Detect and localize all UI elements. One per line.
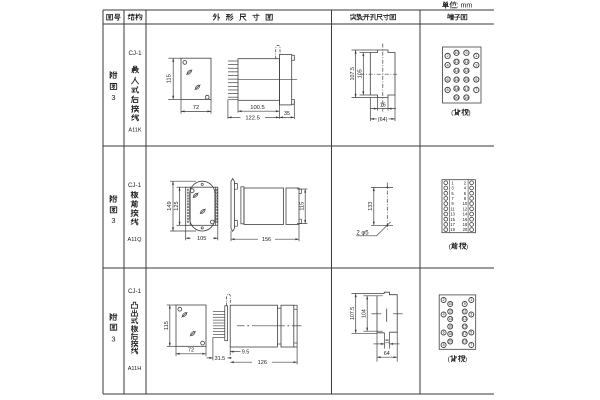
svg-text:6: 6 [447,77,449,82]
svg-text:16: 16 [384,338,389,344]
svg-text:9: 9 [464,302,466,306]
svg-text:35: 35 [284,111,290,117]
svg-text:15: 15 [463,325,467,329]
svg-text:105: 105 [197,236,206,242]
svg-text:5: 5 [470,331,472,335]
svg-text:156: 156 [262,237,271,243]
svg-text:1: 1 [475,53,477,58]
svg-text:(64): (64) [378,117,388,123]
svg-text:(: ( [451,110,454,117]
svg-text:2: 2 [443,298,445,302]
svg-text:122.5: 122.5 [245,116,260,122]
svg-text:105: 105 [358,69,364,78]
svg-text:16: 16 [448,325,452,329]
svg-text:mm: mm [461,3,473,10]
svg-text:): ) [465,356,467,363]
svg-text:100.5: 100.5 [250,105,265,111]
svg-text:14: 14 [448,317,452,321]
svg-text:107.5: 107.5 [350,67,356,81]
svg-text:17: 17 [464,86,468,91]
svg-text:3: 3 [111,335,115,344]
svg-text:20: 20 [448,340,452,344]
svg-text:2: 2 [447,53,449,58]
svg-text:11: 11 [464,59,468,64]
svg-text:72: 72 [188,348,194,354]
svg-text:3: 3 [111,93,115,102]
svg-text:3: 3 [111,216,115,225]
svg-text:(: ( [448,356,451,363]
svg-text:CJ-1: CJ-1 [128,182,142,189]
svg-text:19: 19 [463,340,467,344]
svg-text:3: 3 [475,62,477,67]
svg-text:115: 115 [300,202,306,211]
svg-text:): ) [468,110,470,117]
svg-text:12: 12 [448,310,452,314]
svg-text:CJ-1: CJ-1 [128,50,142,57]
svg-text:8: 8 [447,87,449,92]
svg-text:8: 8 [443,343,445,347]
svg-text:10: 10 [448,302,452,306]
svg-text:16: 16 [454,77,458,82]
svg-text:19: 19 [464,95,468,100]
svg-text:13: 13 [463,317,467,321]
svg-text:7: 7 [470,343,472,347]
svg-text:7: 7 [475,87,477,92]
svg-text:CJ-1: CJ-1 [128,288,142,295]
svg-text:A11K: A11K [128,127,142,133]
svg-text:107.5: 107.5 [350,307,356,320]
svg-text:20: 20 [463,227,468,232]
svg-text:9: 9 [465,50,467,55]
svg-text:104: 104 [361,309,367,318]
svg-text:1: 1 [470,298,472,302]
svg-text:3: 3 [470,313,472,317]
svg-text:A11H: A11H [128,366,142,372]
svg-text:125: 125 [174,201,180,210]
svg-text:115: 115 [164,321,170,330]
svg-text:9.5: 9.5 [242,350,250,356]
svg-text:15: 15 [464,77,468,82]
svg-text:126: 126 [258,360,267,366]
svg-text:115: 115 [167,74,173,83]
svg-text:2 φ5: 2 φ5 [356,230,369,236]
svg-text:): ) [466,243,468,250]
svg-text:A11Q: A11Q [128,237,143,243]
svg-text:64: 64 [384,351,390,357]
svg-text:16: 16 [380,102,386,108]
svg-text:149: 149 [167,201,173,210]
svg-text:31.5: 31.5 [215,356,226,362]
svg-text:72: 72 [193,105,199,111]
svg-text::: : [457,3,459,10]
svg-text:5: 5 [475,77,477,82]
svg-text:13: 13 [464,68,468,73]
svg-text:12: 12 [454,59,458,64]
svg-text:4: 4 [443,313,445,317]
svg-text:11: 11 [463,310,467,314]
svg-text:17: 17 [463,332,467,336]
svg-text:6: 6 [443,331,445,335]
svg-text:133: 133 [368,202,374,211]
svg-text:19: 19 [450,227,455,232]
svg-text:18: 18 [448,332,452,336]
svg-text:18: 18 [454,86,458,91]
